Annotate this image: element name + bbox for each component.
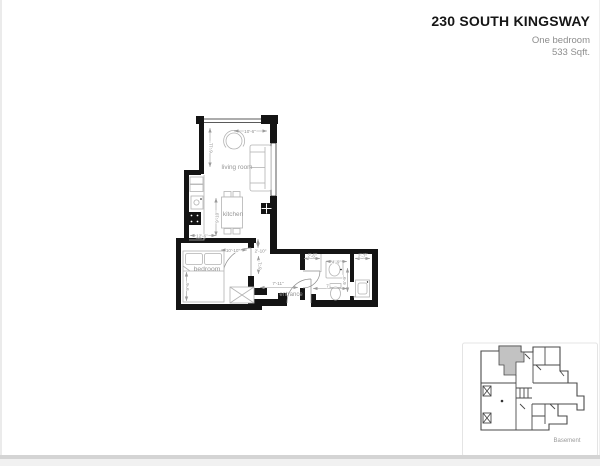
- bed-icon: [183, 251, 224, 302]
- main-floorplan: 10'-6" 6'-11" 9'-10" 12'-6" 10'-10" 2'-1…: [176, 115, 378, 310]
- dim-kitchen-width: 12'-6": [196, 233, 208, 238]
- floorplan-svg: 10'-6" 6'-11" 9'-10" 12'-6" 10'-10" 2'-1…: [0, 0, 600, 466]
- dim-bathroom-height: 6'-9": [342, 275, 347, 285]
- window-right: [271, 143, 276, 196]
- keyplan: Basement: [463, 343, 598, 456]
- fridge-icon: [190, 177, 203, 192]
- dim-bedroom-height: 9'-6": [185, 281, 190, 291]
- armchair-icon: [224, 130, 245, 149]
- closet-icon: [230, 287, 254, 303]
- dim-living-height: 6'-11": [209, 141, 214, 153]
- living-room-label: living room: [222, 164, 253, 171]
- sofa-icon: [250, 145, 271, 191]
- dim-bathroom-width: 4'-9": [332, 259, 342, 264]
- bedroom-label: bedroom: [194, 266, 221, 273]
- kitchen-sink-icon: [191, 196, 203, 209]
- dim-kitchen-height: 9'-10": [215, 211, 220, 223]
- stove-icon: [188, 212, 202, 225]
- page-edge-bottom: [0, 459, 600, 466]
- kitchen-label: kitchen: [223, 211, 244, 218]
- dim-bathroom-length: 7': [326, 284, 330, 289]
- dim-bathroom-nook-width: 2'-6": [307, 253, 317, 258]
- dim-bedroom-width: 10'-10": [226, 248, 241, 253]
- entrance-label: entrance: [279, 292, 303, 298]
- dim-laundry-closet-width: 2'-7": [358, 253, 368, 258]
- toilet-icon: [330, 284, 341, 301]
- dim-bedroom-door-height: 8'-1": [258, 260, 263, 270]
- wall-column: [261, 203, 272, 214]
- keyplan-floor-label: Basement: [553, 438, 580, 444]
- floorplan-page: 230 SOUTH KINGSWAY One bedroom 533 Sqft.: [0, 0, 600, 466]
- dim-hall-width: 2'-10": [255, 249, 267, 254]
- dim-living-width: 10'-6": [244, 129, 256, 134]
- entrance-door: [287, 279, 311, 303]
- page-edge-left: [0, 0, 2, 456]
- window-top: [203, 119, 262, 122]
- washer-icon: [356, 280, 370, 297]
- dim-entrance-width: 7'-11": [272, 281, 284, 286]
